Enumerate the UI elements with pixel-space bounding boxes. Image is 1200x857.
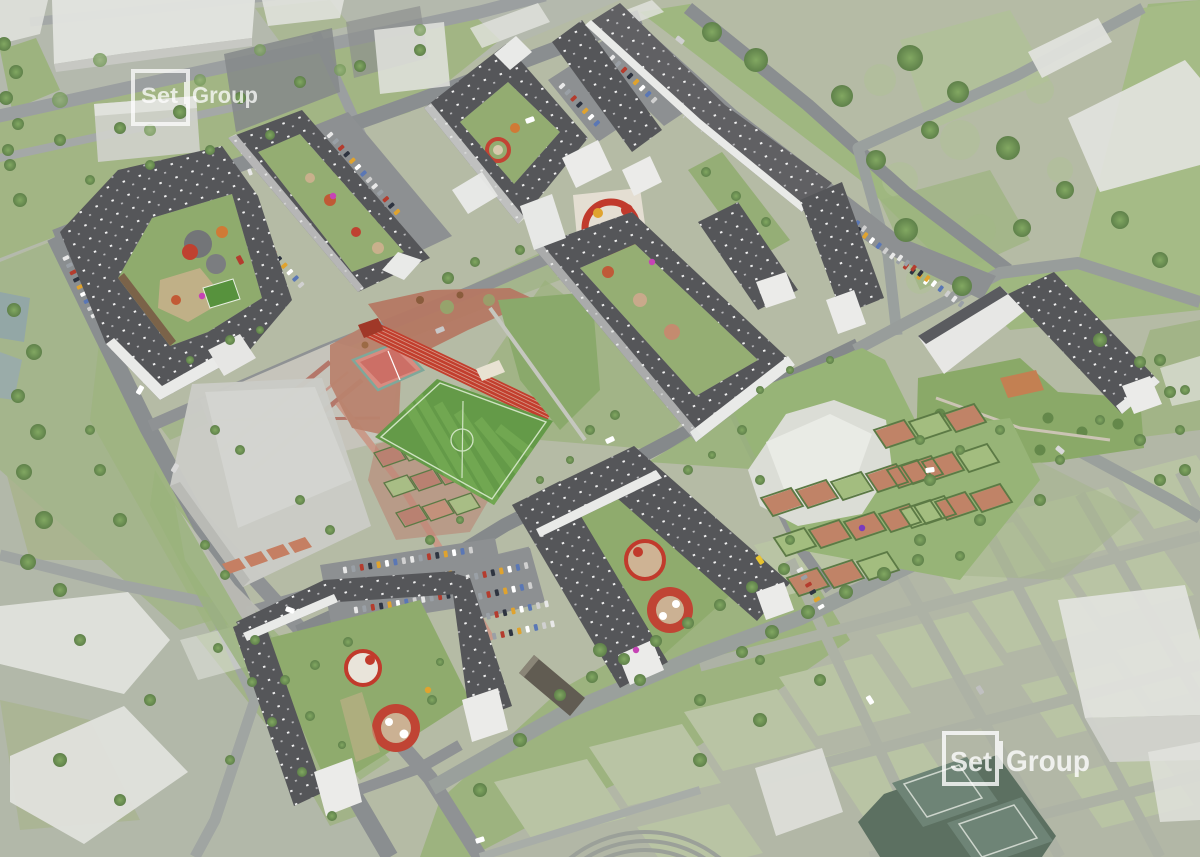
svg-text:Group: Group: [192, 82, 258, 108]
svg-text:Set: Set: [141, 83, 179, 108]
svg-text:Set: Set: [950, 746, 992, 777]
svg-text:Group: Group: [1006, 745, 1090, 778]
